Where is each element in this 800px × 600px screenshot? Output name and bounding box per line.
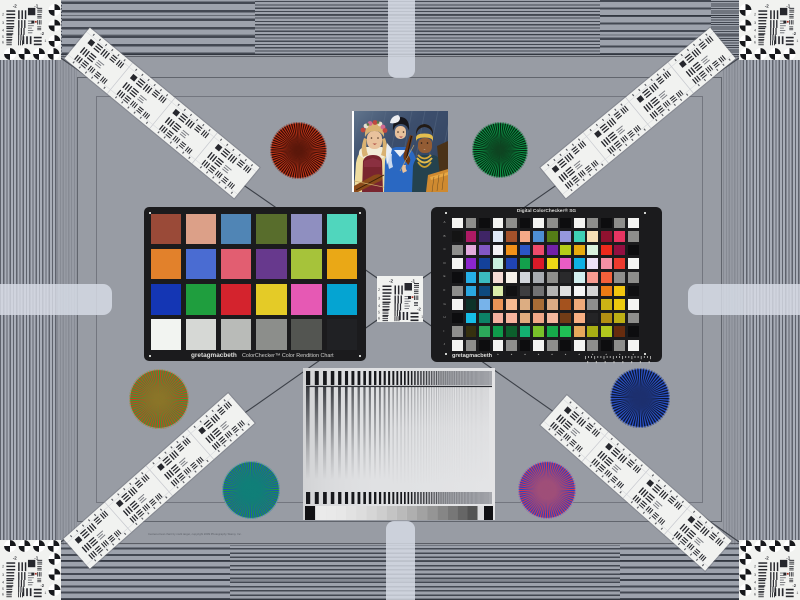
svg-text:1: 1 [796,591,798,595]
svg-text:4: 4 [378,304,380,308]
svg-text:2: 2 [2,13,4,17]
svg-text:4: 4 [754,28,756,32]
svg-text:2: 2 [754,13,756,17]
svg-text:-2: -2 [13,3,17,8]
svg-text:2: 2 [378,288,380,292]
svg-text:4: 4 [754,580,756,584]
svg-text:-1: -1 [786,555,790,560]
svg-text:2: 2 [754,565,756,569]
svg-text:5: 5 [754,35,756,39]
svg-text:6: 6 [2,593,4,597]
svg-text:1: 1 [421,315,423,319]
svg-text:-2: -2 [765,555,769,560]
svg-text:4: 4 [2,28,4,32]
svg-text:1: 1 [44,591,46,595]
svg-text:3: 3 [378,297,380,301]
svg-text:-1: -1 [411,279,416,284]
svg-text:3: 3 [754,21,756,25]
svg-text:-2: -2 [13,555,17,560]
svg-text:-2: -2 [40,583,44,588]
svg-text:5: 5 [2,587,4,591]
svg-text:5: 5 [378,311,380,315]
svg-text:2: 2 [2,565,4,569]
svg-text:-1: -1 [34,3,38,8]
svg-text:5: 5 [754,587,756,591]
svg-text:-2: -2 [792,31,796,36]
svg-text:6: 6 [754,593,756,597]
svg-text:-1: -1 [786,3,790,8]
svg-text:1: 1 [796,39,798,43]
svg-text:3: 3 [2,21,4,25]
svg-text:4: 4 [2,580,4,584]
svg-text:-2: -2 [792,583,796,588]
svg-text:6: 6 [2,41,4,45]
svg-text:5: 5 [2,35,4,39]
svg-text:1: 1 [44,39,46,43]
svg-text:-1: -1 [34,555,38,560]
svg-text:-2: -2 [765,3,769,8]
svg-text:3: 3 [2,573,4,577]
svg-text:6: 6 [378,317,380,321]
svg-text:3: 3 [754,573,756,577]
svg-text:-2: -2 [389,279,394,284]
svg-text:6: 6 [754,41,756,45]
svg-text:-2: -2 [417,307,421,312]
svg-text:-2: -2 [40,31,44,36]
